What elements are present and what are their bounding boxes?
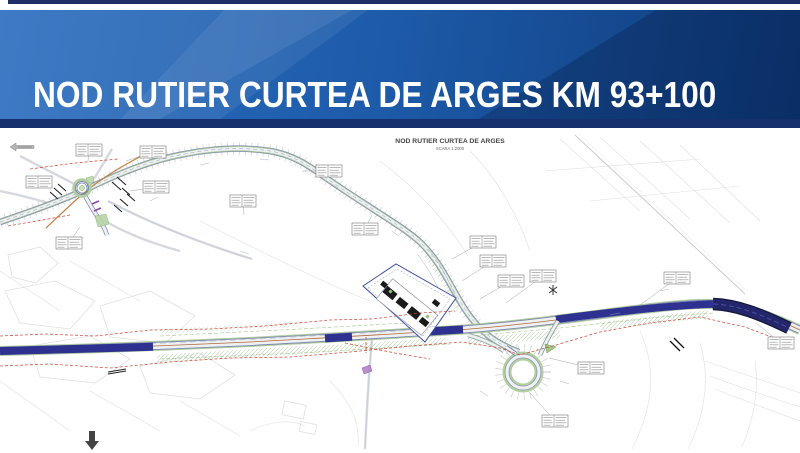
map-title: NOD RUTIER CURTEA DE ARGES — [395, 138, 505, 145]
site-plan-area: NOD RUTIER CURTEA DE ARGES SCARA 1:2000 — [0, 131, 800, 453]
callout-label — [664, 272, 690, 284]
top-accent-bar — [8, 0, 800, 4]
green-island — [545, 344, 556, 353]
map-title-block: NOD RUTIER CURTEA DE ARGES SCARA 1:2000 — [395, 138, 505, 151]
callout-label — [76, 144, 102, 156]
callout-label — [768, 337, 794, 349]
callout-label — [498, 275, 524, 287]
culvert-symbol — [108, 369, 126, 374]
title-banner: NOD RUTIER CURTEA DE ARGES KM 93+100 — [0, 10, 800, 128]
survey-marker-icon — [549, 285, 557, 295]
culvert-symbol — [670, 338, 684, 351]
direction-arrow-icon — [10, 143, 34, 151]
callout-label — [143, 181, 169, 193]
bridge-structure — [713, 304, 789, 328]
callout-label — [140, 146, 166, 158]
callout-label — [316, 165, 342, 177]
banner-bottom-strip — [0, 119, 800, 128]
green-island — [95, 214, 109, 227]
map-scale-label: SCARA 1:2000 — [436, 146, 465, 151]
presentation-slide: NOD RUTIER CURTEA DE ARGES KM 93+100 — [0, 0, 800, 453]
callout-label — [578, 362, 604, 374]
callout-label — [352, 223, 378, 235]
callout-label — [56, 237, 82, 249]
site-plan-map: NOD RUTIER CURTEA DE ARGES SCARA 1:2000 — [0, 131, 800, 453]
callout-label — [230, 195, 256, 207]
callout-label — [26, 176, 52, 188]
callout-label — [470, 236, 496, 248]
callout-label — [480, 255, 506, 267]
slide-title: NOD RUTIER CURTEA DE ARGES KM 93+100 — [33, 74, 716, 116]
callout-label — [530, 270, 556, 282]
callout-label — [542, 415, 568, 427]
flow-arrow-icon — [85, 431, 99, 450]
